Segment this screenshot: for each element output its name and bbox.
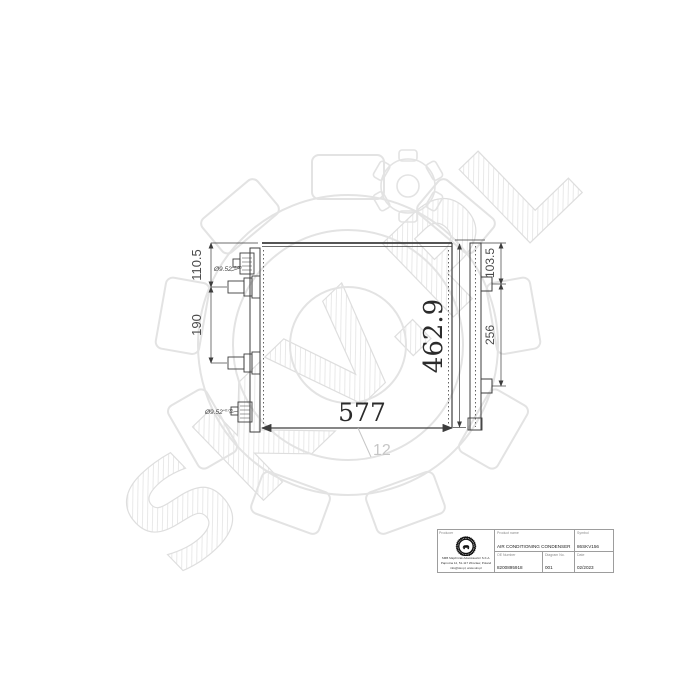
skv-logo-icon — [455, 536, 477, 557]
dim-height-value: 462.9 — [419, 299, 449, 373]
dim-left-port-spacing-value: 190 — [189, 314, 204, 336]
title-block-producer-cell: Producer SMB Majchrzak Adamkiewicz S.K.A… — [438, 530, 495, 572]
condenser-technical-drawing: SKV.PL — [0, 0, 700, 700]
page: SKV.PL — [0, 0, 700, 700]
diagram-no-label: Diagram No. — [545, 553, 572, 558]
oe-number-value: 8200895918 — [497, 565, 540, 571]
title-block: Producer SMB Majchrzak Adamkiewicz S.K.A… — [437, 529, 614, 573]
oe-number-label: OE Number — [497, 553, 540, 558]
symbol-label: Symbol — [577, 531, 611, 536]
date-cell: Date 02/2023 — [575, 552, 613, 573]
diagram-no-cell: Diagram No. 001 — [543, 552, 575, 573]
dim-right-top-offset-value: 103.5 — [483, 248, 497, 278]
diagram-no-value: 001 — [545, 565, 572, 571]
producer-contact: info@skv.pl, www.skv.pl — [450, 567, 482, 571]
dim-depth-value: 12 — [373, 442, 391, 459]
port-top-diameter-label: Ø9.52+0.05 — [213, 265, 243, 274]
dim-left-top-offset-value: 110.5 — [189, 249, 204, 281]
date-label: Date — [577, 553, 611, 558]
symbol-cell: Symbol 86SKV156 — [575, 530, 613, 551]
dim-width-value: 577 — [338, 398, 386, 427]
producer-label: Producer — [439, 531, 453, 536]
symbol-value: 86SKV156 — [577, 544, 611, 550]
oe-number-cell: OE Number 8200895918 — [495, 552, 543, 573]
date-value: 02/2023 — [577, 565, 611, 571]
pipe-fitting-upper — [228, 276, 260, 298]
dim-right-bracket-spacing-value: 256 — [483, 325, 497, 345]
product-name-label: Product name — [497, 531, 572, 536]
service-port-top — [231, 253, 254, 274]
product-name-value: AIR CONDITIONING CONDENSER — [497, 544, 572, 550]
product-name-cell: Product name AIR CONDITIONING CONDENSER — [495, 530, 575, 551]
